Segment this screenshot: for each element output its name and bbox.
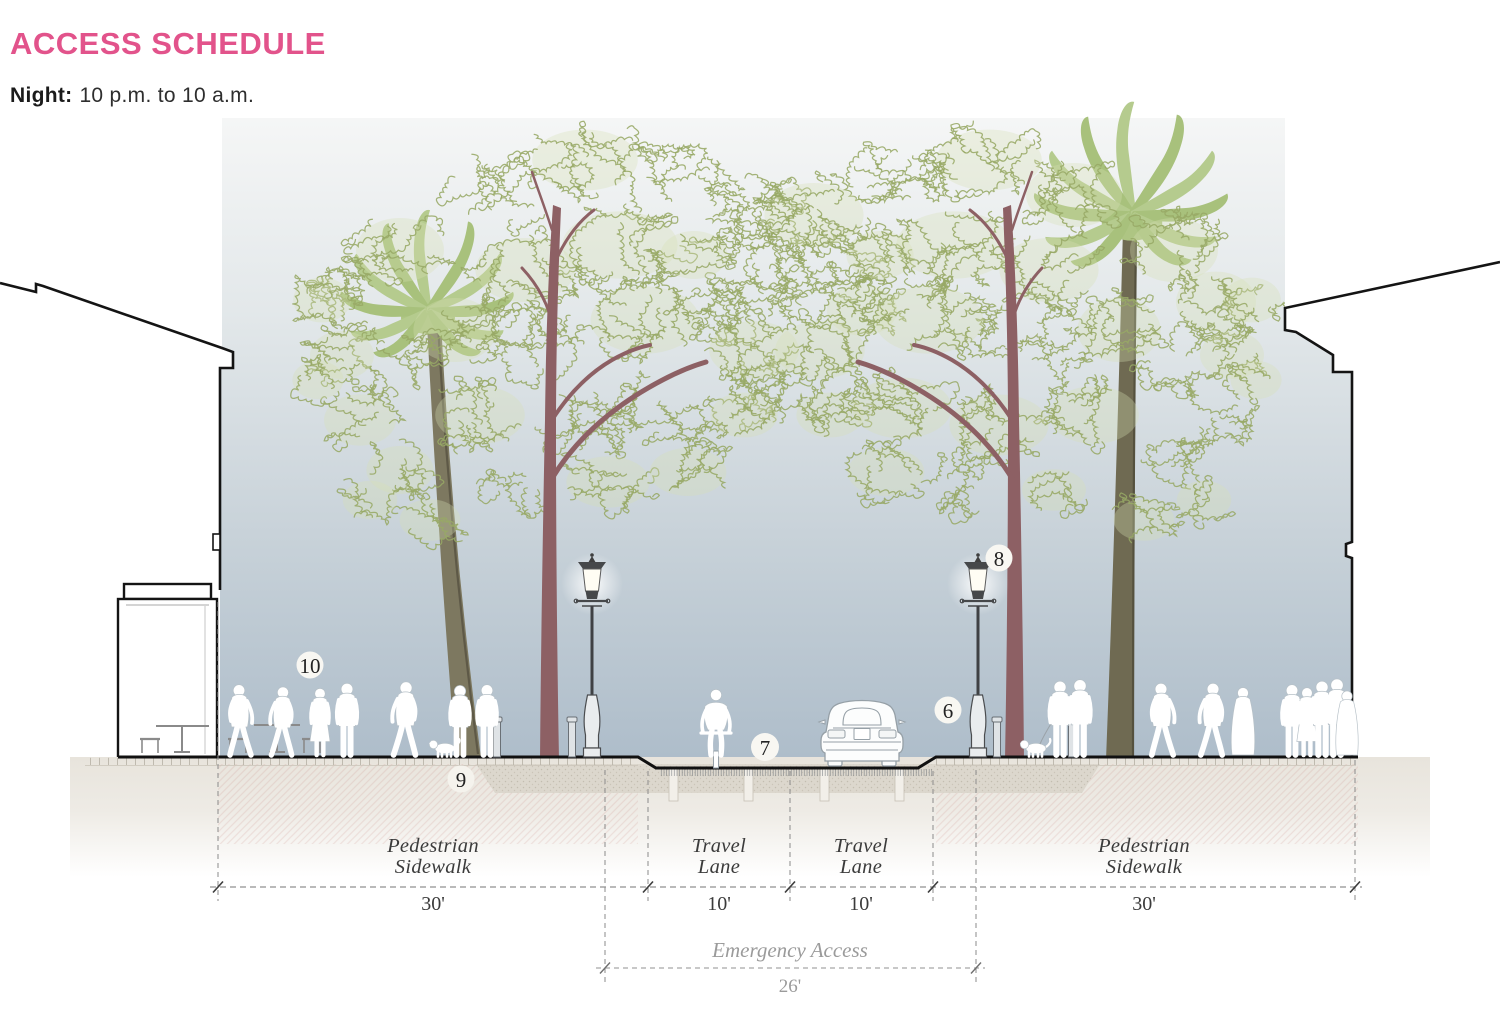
callout-10: 10: [297, 652, 324, 679]
header: ACCESS SCHEDULE Night:10 p.m. to 10 a.m.: [10, 26, 326, 108]
segment-label: Sidewalk: [395, 856, 472, 878]
period-value: 10 p.m. to 10 a.m.: [79, 84, 254, 107]
bollard: [992, 717, 1002, 757]
callout-9: 9: [448, 766, 475, 793]
access-schedule-page: ACCESS SCHEDULE Night:10 p.m. to 10 a.m.: [0, 0, 1500, 1017]
emergency-access-label: Emergency Access: [711, 938, 868, 962]
callout-7: 7: [751, 733, 779, 761]
segment-label: Lane: [839, 856, 882, 878]
bollard: [567, 717, 577, 757]
segment-label: Pedestrian: [386, 835, 479, 857]
segment-width: 10': [849, 893, 873, 915]
ground: [70, 757, 1430, 877]
wall-notch: [213, 534, 220, 550]
storefront-annex: [118, 584, 217, 757]
segment-width: 30': [421, 893, 445, 915]
segment-label: Travel: [692, 835, 746, 857]
access-period: Night:10 p.m. to 10 a.m.: [10, 84, 326, 108]
period-label: Night:: [10, 84, 72, 107]
page-title: ACCESS SCHEDULE: [10, 26, 326, 62]
segment-label: Pedestrian: [1097, 835, 1190, 857]
paver-course: [936, 758, 1356, 765]
svg-text:9: 9: [456, 768, 467, 792]
street-cross-section-diagram: Pedestrian Sidewalk 30' Travel Lane 10' …: [0, 0, 1500, 1017]
svg-text:10: 10: [300, 654, 321, 678]
segment-width: 30': [1132, 893, 1156, 915]
emergency-access-width: 26': [779, 976, 801, 997]
callout-6: 6: [935, 697, 962, 724]
car: [819, 701, 905, 767]
svg-text:8: 8: [994, 547, 1005, 571]
paver-course: [85, 758, 638, 765]
svg-text:7: 7: [760, 736, 771, 760]
segment-width: 10': [707, 893, 731, 915]
svg-text:6: 6: [943, 699, 954, 723]
segment-label: Lane: [697, 856, 740, 878]
roadbed-hatch: [660, 769, 932, 776]
segment-label: Travel: [834, 835, 888, 857]
callout-8: 8: [986, 545, 1013, 572]
segment-label: Sidewalk: [1106, 856, 1183, 878]
